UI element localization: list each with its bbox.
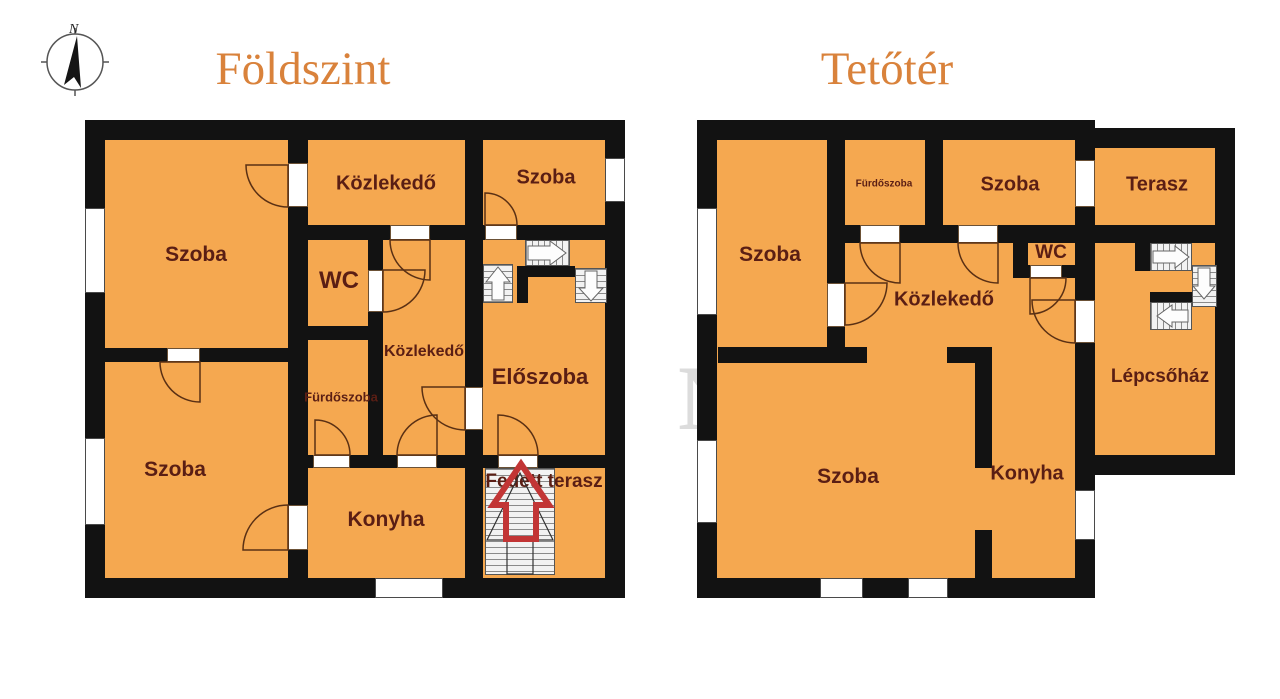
wall-segment <box>1135 243 1150 271</box>
room-label-kozlekedo: Közlekedő <box>384 343 464 361</box>
wall-segment <box>465 140 483 578</box>
door-opening <box>368 270 383 312</box>
door-opening <box>397 455 437 468</box>
wall-segment <box>1093 128 1235 148</box>
room-label-wc: WC <box>319 267 359 295</box>
room-label-fedett-terasz: Fedett terasz <box>485 471 602 493</box>
wall-segment <box>308 225 465 240</box>
stairs <box>1150 302 1192 330</box>
floor-title-tetoter: Tetőtér <box>821 42 953 96</box>
door-opening <box>827 283 845 327</box>
stairs <box>525 240 570 266</box>
window <box>605 158 625 202</box>
wall-segment <box>1150 292 1192 302</box>
room-label-konyha: Konyha <box>990 463 1063 486</box>
room-label-kozlekedo: Közlekedő <box>894 289 994 312</box>
compass-north-label: N <box>68 22 79 37</box>
room-label-szoba: Szoba <box>144 458 206 482</box>
door-opening <box>1075 160 1095 207</box>
room-label-kozlekedo: Közlekedő <box>336 173 436 196</box>
window <box>85 438 105 525</box>
door-opening <box>498 455 538 468</box>
room-label-lepcsohaz: Lépcsőház <box>1111 366 1209 388</box>
wall-segment <box>85 578 625 598</box>
wall-segment <box>517 266 528 303</box>
wall-segment <box>697 120 717 598</box>
room-label-szoba: Szoba <box>739 243 801 267</box>
wall-segment <box>697 120 1095 140</box>
stairs <box>575 268 607 303</box>
floor-plan-canvas: Földszint Tetőtér G N Szoba Közlekedő Sz… <box>0 0 1280 699</box>
compass-needle <box>64 36 81 88</box>
door-opening <box>958 225 998 243</box>
wall-segment <box>1093 455 1235 475</box>
window <box>375 578 443 598</box>
window <box>85 208 105 293</box>
door-opening <box>288 163 308 207</box>
door-opening <box>288 505 308 550</box>
door-opening <box>313 455 350 468</box>
stairs <box>1150 243 1192 271</box>
door-opening <box>1030 265 1062 278</box>
room-label-furdoszoba: Fürdőszoba <box>856 179 913 190</box>
door-opening <box>485 225 517 240</box>
wall-segment <box>308 326 368 340</box>
wall-segment <box>85 120 625 140</box>
floor-title-foldszint: Földszint <box>216 42 391 96</box>
compass-north-icon: N <box>41 22 109 96</box>
window <box>1075 490 1095 540</box>
wall-segment <box>85 120 105 598</box>
window <box>697 208 717 315</box>
room-label-wc: WC <box>1035 242 1067 264</box>
wall-segment <box>1095 225 1215 243</box>
wall-segment <box>1215 128 1235 475</box>
room-label-furdoszoba: Fürdőszoba <box>304 390 378 405</box>
stairs <box>483 264 513 303</box>
room-label-terasz: Terasz <box>1126 174 1188 197</box>
wall-segment <box>718 347 867 363</box>
door-opening <box>860 225 900 243</box>
door-opening <box>465 387 483 430</box>
door-opening <box>1075 300 1095 343</box>
window <box>820 578 863 598</box>
room-label-szoba: Szoba <box>165 243 227 267</box>
room-label-szoba: Szoba <box>981 174 1040 197</box>
window <box>697 440 717 523</box>
door-opening <box>390 225 430 240</box>
room-label-eloszoba: Előszoba <box>492 364 589 390</box>
room-label-szoba: Szoba <box>517 167 576 190</box>
wall-segment <box>697 578 1095 598</box>
stairs <box>1192 265 1217 307</box>
window <box>908 578 948 598</box>
door-opening <box>167 348 200 362</box>
room-label-konyha: Konyha <box>347 508 424 532</box>
room-label-szoba: Szoba <box>817 465 879 489</box>
wall-segment <box>925 140 943 225</box>
